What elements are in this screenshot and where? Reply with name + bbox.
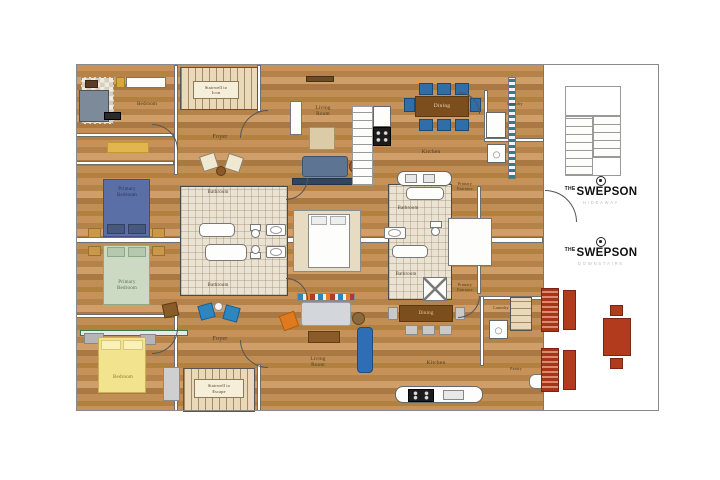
wall-top-left-v — [174, 65, 178, 175]
label-kitchen-bottom: Kitchen — [412, 359, 460, 368]
dining-chair-t2 — [437, 83, 451, 95]
floor-plan-canvas: Stairwell to IconStairwell to EscapeDini… — [0, 0, 720, 480]
primary-bed-green-pillow-2 — [128, 247, 146, 257]
deck-lounge-2b — [563, 350, 576, 390]
dining2-chair-left — [388, 307, 398, 320]
kitchen-sink-1 — [405, 174, 417, 183]
sink-3-basin — [388, 229, 401, 237]
living-armchair-table — [309, 127, 335, 150]
dining2-chair-1 — [405, 325, 418, 335]
deck-chair-top — [610, 305, 623, 316]
label-living-bottom: Living Room — [296, 355, 340, 369]
bedroom-bench — [104, 112, 121, 120]
closet-door-gray — [163, 367, 180, 401]
panel-stairs-treads-right — [593, 116, 621, 158]
bathtub-3 — [406, 187, 444, 200]
unit2-subtitle: DOWNSTAIRS — [543, 261, 659, 266]
dining-chair-b2 — [437, 119, 451, 131]
stairs-bottom-right — [510, 297, 532, 331]
nightstand-1 — [88, 228, 101, 238]
dining-chair-b3 — [455, 119, 469, 131]
label-primary-green: Primary Bedroom — [105, 279, 149, 292]
logo-name-1: SWEPSON — [577, 186, 638, 198]
bed-yellow-pillow-1 — [101, 340, 121, 350]
dining2-chair-3 — [439, 325, 452, 335]
label-bedroom-bottom: Bedroom — [103, 373, 143, 382]
living-sofa-blue — [302, 156, 348, 177]
label-primary-blue: Primary Bedroom — [105, 186, 149, 199]
foyer-table-2 — [214, 302, 223, 311]
foyer-chair-blue-2 — [222, 304, 240, 322]
door-arc-9 — [286, 278, 308, 300]
door-arc-4 — [240, 340, 268, 368]
kitchen2-stove — [408, 389, 434, 402]
panel-stairs-landing — [565, 86, 621, 116]
living-coffee-table — [308, 331, 340, 343]
ceiling-decor — [306, 76, 334, 82]
toilet-1-bowl — [251, 229, 260, 238]
living-daybed — [357, 327, 373, 373]
foyer-chair-blue-1 — [197, 302, 215, 320]
stairwell-bottom-label: Stairwell to Escape — [194, 379, 244, 398]
deck-lounge-1b — [563, 290, 576, 330]
living-chair-orange — [279, 311, 300, 332]
deck-table — [603, 318, 631, 356]
living-pouf — [352, 312, 365, 325]
closet-right — [448, 218, 492, 266]
unit1-brand: THESWEPSON — [543, 187, 659, 199]
unit2-brand: THESWEPSON — [543, 248, 659, 260]
label-pantry: Pantry — [500, 366, 532, 373]
wall-stair-bottom-v — [257, 364, 261, 411]
panel-stairs-treads-left — [565, 116, 593, 176]
label-foyer-top: Foyer — [198, 133, 242, 142]
label-foyer-bottom: Foyer — [198, 335, 242, 344]
shower-stall — [423, 277, 447, 301]
label-laundry-top: Laundry — [498, 101, 532, 108]
logo-name-2: SWEPSON — [577, 247, 638, 259]
swepson-logo-icon — [596, 176, 606, 186]
bed-yellow-pillow-2 — [123, 340, 143, 350]
unit1-subtitle: HIDEAWAY — [543, 200, 659, 205]
nightstand-3 — [88, 246, 101, 256]
primary-bed-blue-pillow-2 — [128, 224, 146, 234]
washer-bottom — [489, 320, 508, 339]
logo-the-2: THE — [565, 247, 576, 253]
kitchen2-sink — [443, 390, 464, 400]
bedroom-rug-yellow — [107, 142, 149, 153]
bathtub-4 — [392, 245, 428, 258]
label-bathroom-3: Bathroom — [386, 205, 430, 213]
primary-bed-green-pillow-1 — [107, 247, 125, 257]
dining-chair-b1 — [419, 119, 433, 131]
door-arc-5 — [458, 92, 480, 114]
label-kitchen-top: Kitchen — [407, 148, 455, 157]
logo-the-1: THE — [565, 186, 576, 192]
sink-2-basin — [270, 248, 282, 256]
toilet-2-bowl — [251, 245, 260, 254]
kitchen-counter-2 — [373, 106, 391, 127]
bathroom-floor-left — [180, 186, 288, 296]
fridge — [486, 112, 506, 138]
wall-primary-top-h — [76, 161, 174, 165]
dining-chair-t1 — [419, 83, 433, 95]
door-arc-2 — [240, 110, 268, 138]
label-primary-entrance-2: Primary Entrance — [452, 283, 478, 292]
dining-table-bottom: Dining — [399, 305, 453, 322]
center-bed-pillow-1 — [311, 216, 327, 225]
label-bathroom-4: Bathroom — [384, 271, 428, 279]
kitchen-sink-2 — [423, 174, 435, 183]
nightstand-2 — [152, 228, 165, 238]
dining2-chair-2 — [422, 325, 435, 335]
kitchen-stove — [373, 127, 391, 146]
bedroom-bed-pillow — [85, 80, 98, 88]
label-bathroom-1: Bathroom — [188, 189, 248, 197]
wall-primary-bottom-h — [76, 314, 174, 318]
unit2-logo: THESWEPSON DOWNSTAIRS — [543, 237, 659, 266]
unit1-logo: THESWEPSON HIDEAWAY — [543, 176, 659, 205]
nightstand-4 — [152, 246, 165, 256]
washer-top — [487, 144, 506, 163]
sink-1-basin — [270, 226, 282, 234]
label-living-top: Living Room — [301, 104, 345, 118]
primary-bed-blue-pillow-1 — [107, 224, 125, 234]
stairwell-top-label: Stairwell to Icon — [193, 81, 239, 99]
bathtub-1 — [199, 223, 235, 237]
door-arc-8 — [286, 178, 308, 200]
bedroom-dresser — [126, 77, 166, 88]
bathtub-2 — [205, 244, 247, 261]
kitchen-counter — [352, 106, 373, 186]
living-sofa-gray — [301, 302, 351, 326]
label-bathroom-2: Bathroom — [188, 282, 248, 290]
swepson-logo-icon-2 — [596, 237, 606, 247]
bedroom-nightstand-yellow — [116, 77, 125, 88]
foyer-chair-2 — [224, 153, 244, 173]
label-laundry-bottom: Laundry — [484, 305, 518, 312]
label-bedroom-top: Bedroom — [122, 100, 172, 110]
foyer-table — [216, 166, 226, 176]
stair-runner-teal — [508, 77, 516, 179]
deck-lounge-2 — [541, 348, 559, 392]
label-primary-entrance-1: Primary Entrance — [452, 182, 478, 191]
dining-chair-left — [404, 98, 415, 112]
deck-chair-bottom — [610, 358, 623, 369]
toilet-3-bowl — [431, 227, 440, 236]
center-bed-pillow-2 — [330, 216, 346, 225]
door-arc-6 — [458, 296, 480, 318]
deck-lounge-1 — [541, 288, 559, 332]
